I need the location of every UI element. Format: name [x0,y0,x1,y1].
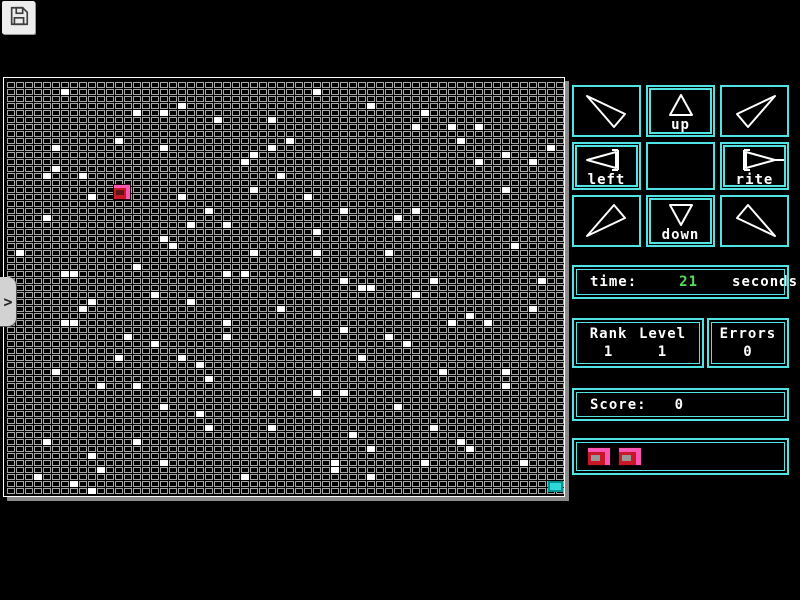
grid-cell [61,348,69,354]
white-cell [466,313,474,319]
rank-label: Rank [590,325,628,343]
grid-cell [160,334,168,340]
grid-cell [250,236,258,242]
grid-cell [385,474,393,480]
grid-cell [34,145,42,151]
grid-cell [259,180,267,186]
grid-cell [304,110,312,116]
grid-cell [43,327,51,333]
grid-cell [187,306,195,312]
grid-cell [421,257,429,263]
grid-cell [79,201,87,207]
grid-cell [412,376,420,382]
grid-cell [304,418,312,424]
grid-cell [349,481,357,487]
grid-cell [322,145,330,151]
white-cell [250,250,258,256]
grid-cell [394,138,402,144]
grid-cell [556,425,564,431]
grid-cell [385,432,393,438]
grid-cell [88,474,96,480]
game-board[interactable] [3,77,565,497]
grid-cell [358,257,366,263]
grid-cell [286,117,294,123]
grid-cell [394,446,402,452]
grid-cell [160,250,168,256]
grid-cell [232,348,240,354]
grid-cell [205,453,213,459]
grid-cell [106,236,114,242]
grid-cell [133,117,141,123]
grid-cell [259,467,267,473]
grid-cell [475,425,483,431]
grid-cell [169,355,177,361]
grid-cell [61,460,69,466]
grid-cell [529,215,537,221]
grid-cell [484,215,492,221]
grid-cell [376,173,384,179]
grid-cell [205,418,213,424]
arrow-s-button[interactable]: down [646,195,715,247]
grid-cell [457,110,465,116]
grid-cell [412,306,420,312]
grid-cell [214,229,222,235]
grid-cell [313,362,321,368]
grid-cell [322,96,330,102]
arrow-n-button[interactable]: up [646,85,715,137]
grid-cell [493,376,501,382]
grid-cell [403,124,411,130]
grid-cell [187,474,195,480]
grid-cell [88,313,96,319]
grid-cell [502,110,510,116]
grid-cell [142,180,150,186]
grid-cell [376,180,384,186]
grid-cell [187,194,195,200]
grid-cell [448,159,456,165]
grid-cell [448,152,456,158]
grid-cell [223,138,231,144]
grid-cell [286,488,294,494]
grid-cell [475,488,483,494]
grid-cell [520,292,528,298]
grid-cell [394,271,402,277]
grid-cell [295,348,303,354]
grid-cell [223,383,231,389]
grid-cell [142,145,150,151]
grid-cell [358,418,366,424]
grid-cell [43,467,51,473]
grid-cell [232,460,240,466]
grid-cell [385,194,393,200]
grid-cell [25,341,33,347]
grid-cell [151,320,159,326]
grid-cell [358,201,366,207]
grid-cell [43,96,51,102]
grid-cell [358,138,366,144]
grid-cell [286,320,294,326]
grid-cell [547,264,555,270]
grid-cell [295,425,303,431]
grid-cell [457,271,465,277]
grid-cell [34,152,42,158]
grid-cell [421,159,429,165]
grid-cell [430,299,438,305]
grid-cell [349,488,357,494]
grid-cell [214,453,222,459]
grid-cell [358,488,366,494]
grid-cell [493,320,501,326]
grid-cell [61,313,69,319]
grid-cell [232,278,240,284]
grid-cell [421,271,429,277]
grid-cell [475,271,483,277]
grid-cell [547,383,555,389]
grid-cell [214,250,222,256]
grid-cell [511,96,519,102]
white-cell [223,334,231,340]
grid-cell [520,348,528,354]
grid-cell [493,250,501,256]
grid-cell [448,474,456,480]
grid-cell [214,208,222,214]
grid-cell [331,355,339,361]
grid-cell [61,208,69,214]
arrow-ne-button[interactable] [720,85,789,137]
grid-cell [25,439,33,445]
grid-cell [187,271,195,277]
grid-cell [340,173,348,179]
grid-cell [70,145,78,151]
grid-cell [403,411,411,417]
grid-cell [304,481,312,487]
white-cell [79,306,87,312]
grid-cell [151,488,159,494]
grid-cell [259,313,267,319]
grid-cell [133,404,141,410]
grid-cell [385,159,393,165]
arrow-e-button[interactable]: rite [720,142,789,190]
grid-cell [304,369,312,375]
arrow-nw-button[interactable] [572,85,641,137]
grid-cell [61,418,69,424]
grid-cell [448,446,456,452]
grid-cell [457,166,465,172]
grid-cell [286,285,294,291]
grid-cell [448,390,456,396]
grid-cell [16,453,24,459]
grid-cell [97,299,105,305]
grid-cell [124,250,132,256]
grid-cell [457,355,465,361]
grid-cell [187,376,195,382]
grid-cell [7,376,15,382]
arrow-sw-button[interactable] [572,195,641,247]
grid-cell [214,243,222,249]
grid-cell [448,313,456,319]
grid-cell [439,488,447,494]
grid-cell [331,236,339,242]
grid-cell [484,425,492,431]
grid-cell [169,348,177,354]
grid-cell [358,103,366,109]
grid-cell [556,173,564,179]
grid-cell [394,327,402,333]
grid-cell [241,117,249,123]
grid-cell [205,124,213,130]
grid-cell [16,348,24,354]
grid-cell [448,131,456,137]
grid-cell [511,264,519,270]
grid-cell [52,271,60,277]
grid-cell [295,362,303,368]
grid-cell [502,362,510,368]
grid-cell [232,264,240,270]
player-block[interactable] [114,185,130,199]
time-label: time: [590,274,637,290]
grid-cell [214,124,222,130]
grid-cell [70,243,78,249]
grid-cell [529,348,537,354]
grid-cell [556,362,564,368]
grid-cell [97,250,105,256]
level-label: Level [639,325,686,343]
grid-cell [142,488,150,494]
grid-cell [259,96,267,102]
grid-cell [556,355,564,361]
grid-cell [178,432,186,438]
grid-cell [304,131,312,137]
grid-cell [529,229,537,235]
grid-cell [133,229,141,235]
grid-cell [259,439,267,445]
grid-cell [160,348,168,354]
grid-cell [439,187,447,193]
grid-cell [322,467,330,473]
grid-cell [97,201,105,207]
grid-cell [160,257,168,263]
grid-cell [43,453,51,459]
grid-cell [250,418,258,424]
grid-cell [106,285,114,291]
arrow-w-button[interactable]: left [572,142,641,190]
grid-cell [79,250,87,256]
grid-cell [457,145,465,151]
grid-cell [214,292,222,298]
grid-cell [493,418,501,424]
grid-cell [304,397,312,403]
grid-cell [214,278,222,284]
arrow-se-button[interactable] [720,195,789,247]
white-cell [538,278,546,284]
grid-cell [88,173,96,179]
grid-cell [466,152,474,158]
grid-cell [412,117,420,123]
grid-cell [457,89,465,95]
grid-cell [430,82,438,88]
grid-cell [169,306,177,312]
grid-cell [250,439,258,445]
time-box: time: 21 seconds [572,265,789,299]
grid-cell [79,369,87,375]
grid-cell [439,383,447,389]
grid-cell [322,299,330,305]
grid-cell [43,264,51,270]
grid-cell [475,103,483,109]
grid-cell [52,159,60,165]
grid-cell [214,306,222,312]
grid-cell [241,166,249,172]
grid-cell [520,425,528,431]
grid-cell [196,145,204,151]
grid-cell [25,208,33,214]
grid-cell [322,341,330,347]
white-cell [178,103,186,109]
grid-cell [196,89,204,95]
grid-cell [295,334,303,340]
grid-cell [403,187,411,193]
grid-cell [25,348,33,354]
grid-cell [70,411,78,417]
grid-cell [520,131,528,137]
grid-cell [322,82,330,88]
grid-cell [412,187,420,193]
grid-cell [349,180,357,186]
grid-cell [313,341,321,347]
grid-cell [511,82,519,88]
grid-cell [232,334,240,340]
grid-cell [313,145,321,151]
grid-cell [16,166,24,172]
grid-cell [187,96,195,102]
grid-cell [214,341,222,347]
grid-cell [331,439,339,445]
grid-cell [556,306,564,312]
grid-cell [331,376,339,382]
grid-cell [331,411,339,417]
grid-cell [187,334,195,340]
grid-cell [178,292,186,298]
grid-cell [376,418,384,424]
grid-cell [223,117,231,123]
grid-cell [115,222,123,228]
grid-cell [205,271,213,277]
grid-cell [394,117,402,123]
grid-cell [295,243,303,249]
grid-cell [43,243,51,249]
grid-cell [475,236,483,242]
save-button[interactable] [2,1,35,34]
grid-cell [295,299,303,305]
grid-cell [349,425,357,431]
grid-cell [7,439,15,445]
grid-cell [529,439,537,445]
grid-cell [124,425,132,431]
grid-cell [376,467,384,473]
grid-cell [169,117,177,123]
grid-cell [250,222,258,228]
grid-cell [403,488,411,494]
grid-cell [142,313,150,319]
grid-cell [520,229,528,235]
grid-cell [412,362,420,368]
grid-cell [412,138,420,144]
grid-cell [403,131,411,137]
grid-cell [295,250,303,256]
grid-cell [493,117,501,123]
grid-cell [88,208,96,214]
grid-cell [322,453,330,459]
white-cell [160,110,168,116]
grid-cell [187,257,195,263]
grid-cell [556,208,564,214]
grid-cell [160,306,168,312]
grid-cell [403,383,411,389]
grid-cell [358,467,366,473]
grid-cell [277,271,285,277]
grid-cell [268,376,276,382]
grid-cell [34,467,42,473]
grid-cell [376,278,384,284]
grid-cell [61,124,69,130]
grid-cell [196,194,204,200]
grid-cell [133,82,141,88]
grid-cell [70,278,78,284]
grid-cell [7,362,15,368]
grid-cell [16,173,24,179]
grid-cell [484,236,492,242]
grid-cell [466,327,474,333]
grid-cell [70,215,78,221]
grid-cell [538,474,546,480]
grid-cell [196,376,204,382]
grid-cell [394,208,402,214]
grid-cell [340,334,348,340]
goal-cell[interactable] [548,481,563,492]
grid-cell [97,229,105,235]
grid-cell [61,173,69,179]
grid-cell [529,418,537,424]
grid-cell [439,411,447,417]
grid-cell [511,222,519,228]
grid-cell [79,117,87,123]
grid-cell [502,166,510,172]
grid-cell [430,124,438,130]
grid-cell [322,292,330,298]
grid-cell [88,124,96,130]
grid-cell [223,397,231,403]
grid-cell [187,243,195,249]
grid-cell [493,446,501,452]
grid-cell [7,467,15,473]
grid-cell [124,327,132,333]
grid-cell [250,362,258,368]
grid-cell [394,376,402,382]
drawer-handle[interactable]: > [0,277,17,327]
grid-cell [340,250,348,256]
grid-cell [61,180,69,186]
grid-cell [52,222,60,228]
grid-cell [430,138,438,144]
grid-cell [241,201,249,207]
grid-cell [439,481,447,487]
grid-cell [223,453,231,459]
grid-cell [520,194,528,200]
grid-cell [277,152,285,158]
grid-cell [187,159,195,165]
grid-cell [25,180,33,186]
grid-cell [511,194,519,200]
